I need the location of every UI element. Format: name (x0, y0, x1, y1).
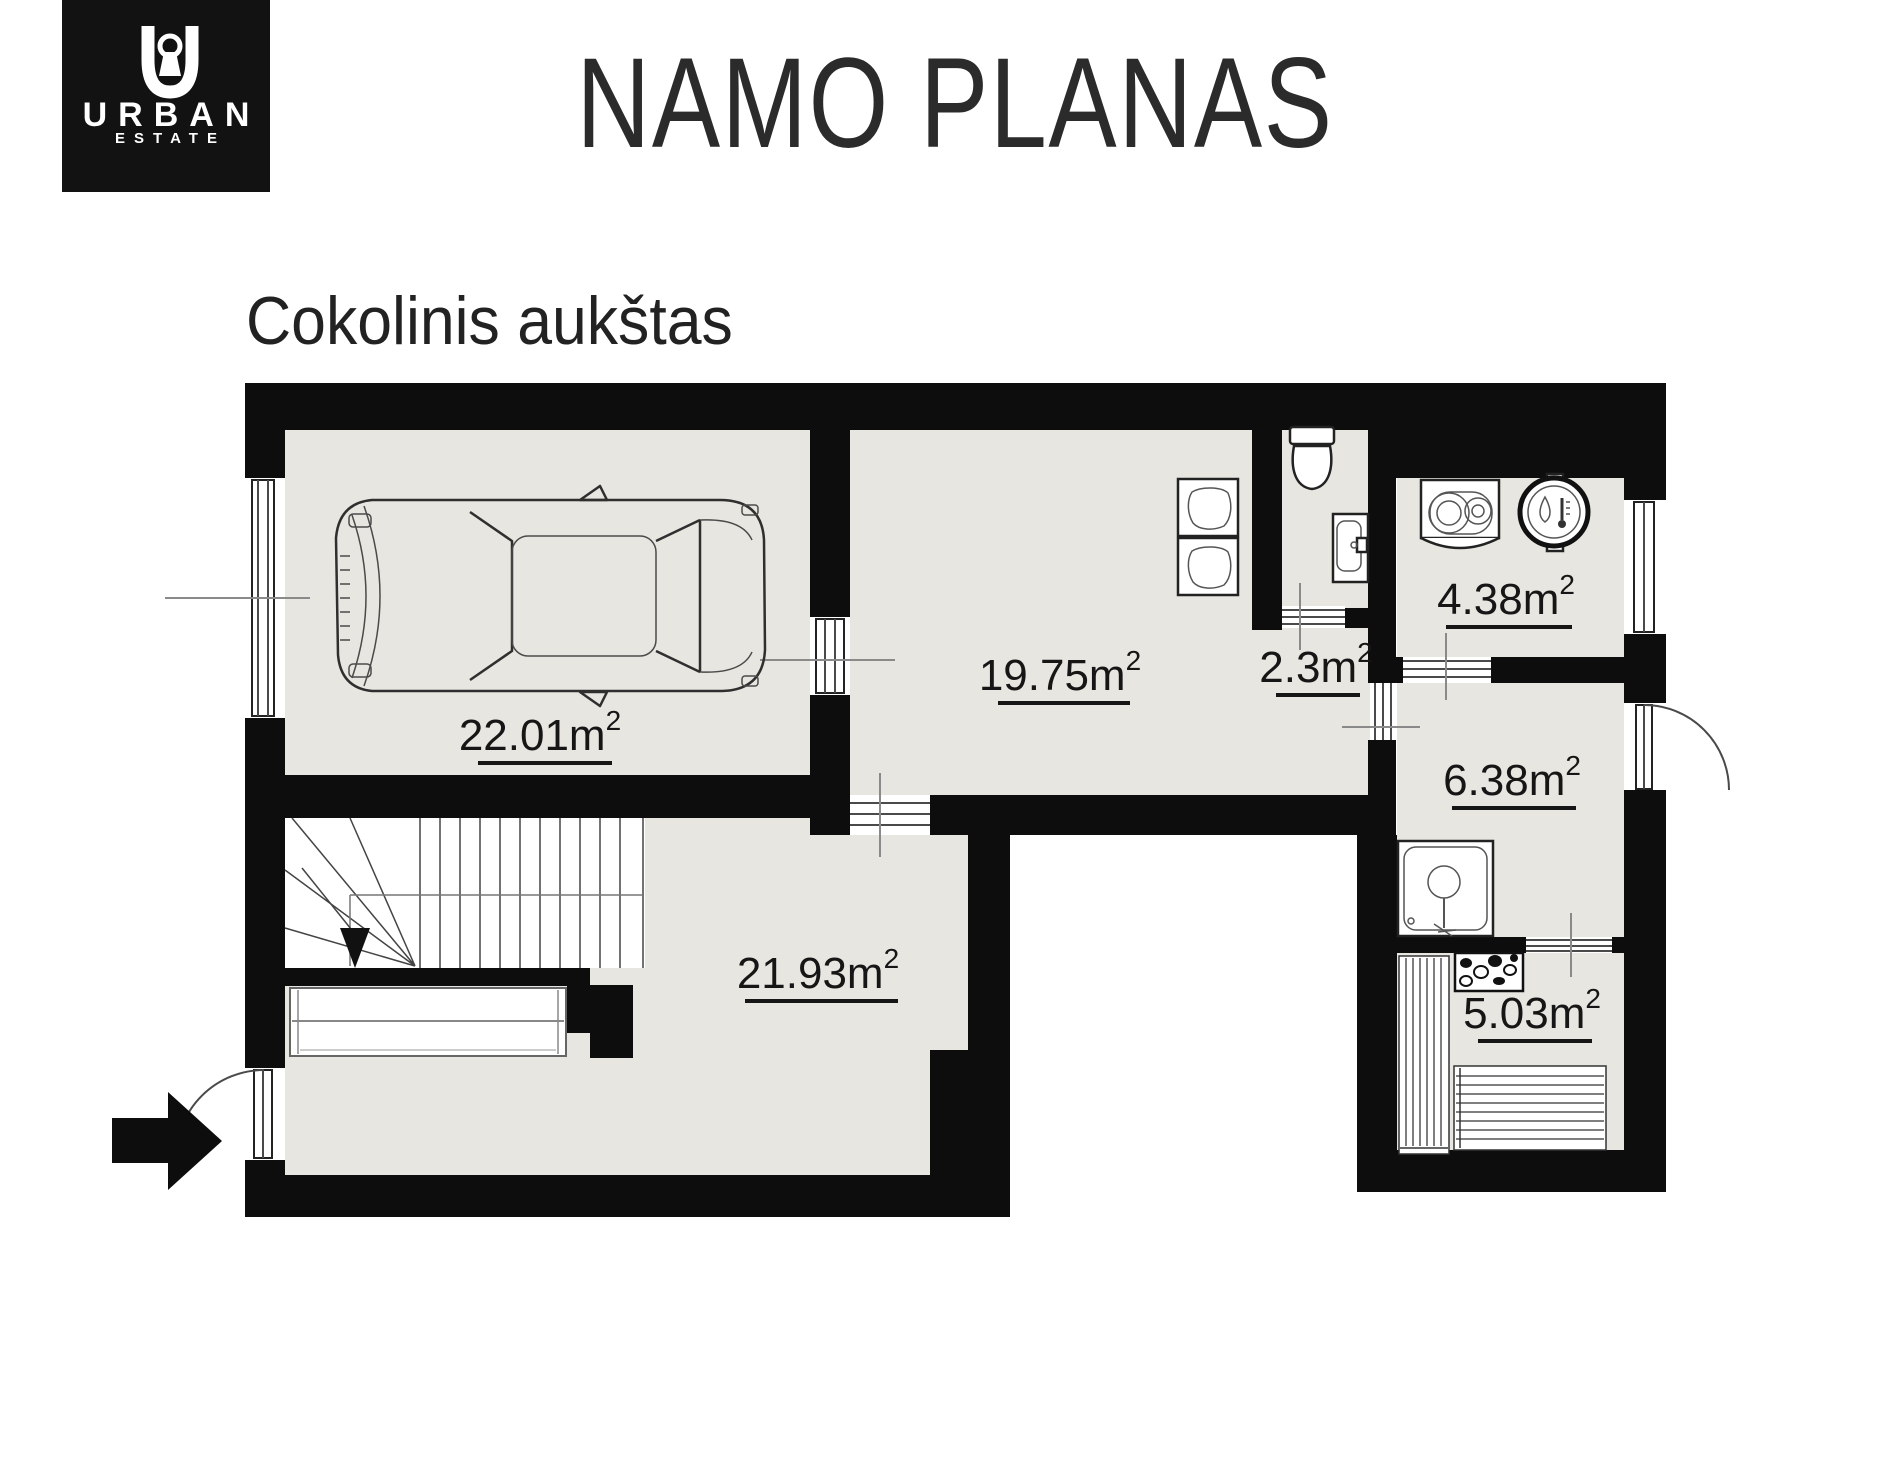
floor-plan-drawing: 22.01m2 19.75m2 2.3m2 4.38m2 6.38m2 21.9… (0, 0, 1900, 1475)
entrance-right (1624, 703, 1729, 790)
stairwell-floor (285, 818, 645, 968)
sauna-stove (1455, 953, 1523, 991)
wardrobe (290, 988, 566, 1056)
armchairs (1178, 479, 1238, 595)
washing-machine (1421, 480, 1499, 548)
label-basement-room: 21.93m2 (737, 943, 899, 1001)
sauna-bench-vertical (1399, 956, 1449, 1154)
sauna-bench-horizontal (1454, 1066, 1606, 1150)
entrance-arrow (112, 1092, 222, 1190)
shower (1398, 841, 1493, 936)
svg-text:2.3m2: 2.3m2 (1259, 637, 1372, 692)
label-wc: 2.3m2 (1259, 637, 1372, 695)
washbasin (1333, 514, 1368, 582)
window-bathroom (1624, 500, 1666, 634)
toilet (1290, 427, 1334, 489)
label-garage: 22.01m2 (459, 705, 621, 763)
label-living-room: 19.75m2 (979, 645, 1141, 703)
svg-text:5.03m2: 5.03m2 (1463, 983, 1601, 1038)
boiler (1520, 474, 1588, 551)
svg-text:21.93m2: 21.93m2 (737, 943, 899, 998)
svg-text:4.38m2: 4.38m2 (1437, 569, 1575, 624)
label-hallway: 6.38m2 (1443, 750, 1581, 808)
label-bathroom: 4.38m2 (1437, 569, 1575, 627)
floor-plan-page: URBAN ESTATE NAMO PLANAS Cokolinis aukšt… (0, 0, 1900, 1475)
svg-text:19.75m2: 19.75m2 (979, 645, 1141, 700)
svg-text:6.38m2: 6.38m2 (1443, 750, 1581, 805)
svg-text:22.01m2: 22.01m2 (459, 705, 621, 760)
label-sauna: 5.03m2 (1463, 983, 1601, 1041)
